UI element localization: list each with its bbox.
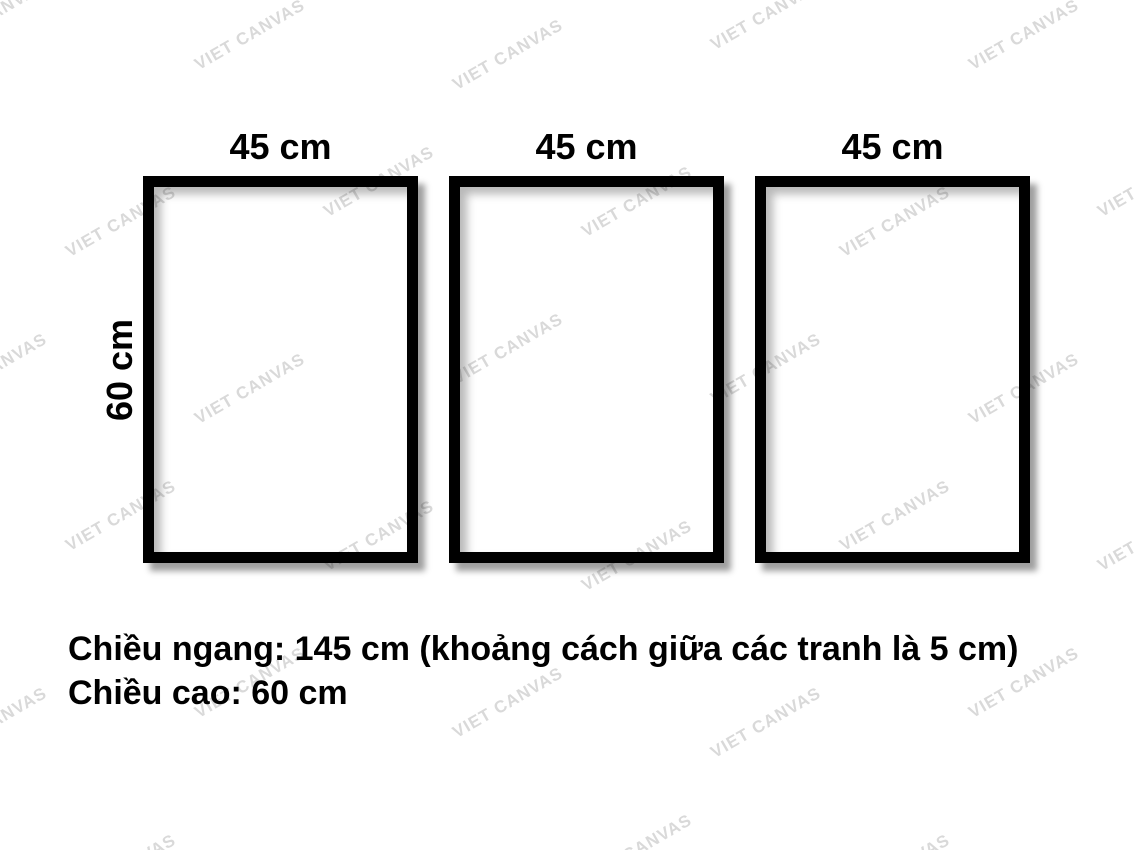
watermark-text: VIET CANVAS — [965, 0, 1082, 75]
frame-3-width-label: 45 cm — [755, 126, 1030, 168]
caption: Chiều ngang: 145 cm (khoảng cách giữa cá… — [68, 627, 1018, 715]
canvas-frame-3 — [755, 176, 1030, 563]
height-label: 60 cm — [98, 295, 142, 445]
watermark-text: VIET CANVAS — [0, 329, 51, 408]
canvas-frame-1 — [143, 176, 418, 563]
watermark-text: VIET CANVAS — [578, 810, 695, 850]
watermark-text: VIET CANVAS — [836, 830, 953, 850]
watermark-text: VIET CANVAS — [191, 0, 308, 75]
watermark-text: VIET CANVAS — [62, 830, 179, 850]
watermark-text: VIET CANVAS — [449, 15, 566, 94]
caption-line-vertical: Chiều cao: 60 cm — [68, 671, 1018, 715]
frame-1-width-label: 45 cm — [143, 126, 418, 168]
watermark-text: VIET CANVAS — [0, 0, 51, 55]
watermark-text: VIET CANVAS — [1094, 496, 1134, 575]
watermark-text: VIET CANVAS — [1094, 142, 1134, 221]
canvas-frame-2 — [449, 176, 724, 563]
frame-2-width-label: 45 cm — [449, 126, 724, 168]
canvas-size-diagram: VIET CANVASVIET CANVASVIET CANVASVIET CA… — [0, 0, 1134, 850]
watermark-text: VIET CANVAS — [0, 683, 51, 762]
watermark-text: VIET CANVAS — [707, 0, 824, 55]
caption-line-horizontal: Chiều ngang: 145 cm (khoảng cách giữa cá… — [68, 627, 1018, 671]
